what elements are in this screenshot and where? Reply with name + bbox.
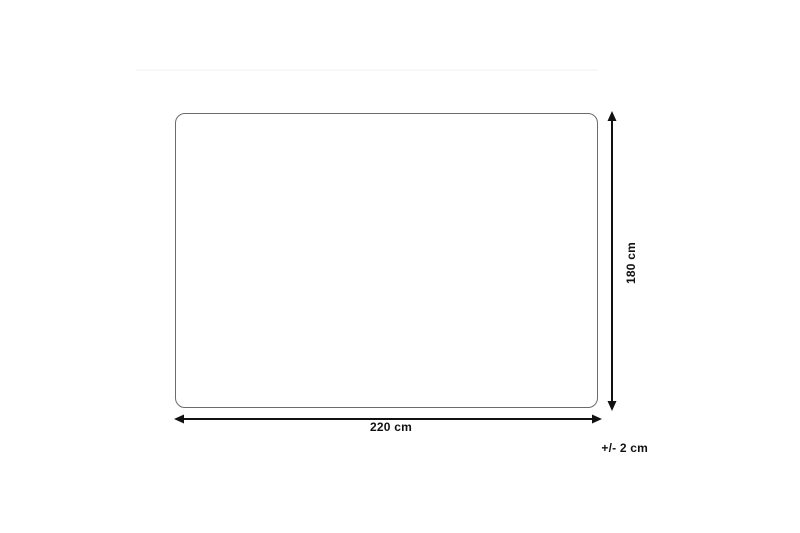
dimension-diagram: 180 cm 220 cm +/- 2 cm	[0, 0, 800, 533]
faint-divider-line	[136, 69, 598, 71]
height-dimension-arrow-icon	[605, 111, 619, 411]
product-outline-rectangle	[175, 113, 598, 408]
height-dimension-label: 180 cm	[624, 242, 638, 284]
width-dimension-label: 220 cm	[370, 420, 412, 434]
tolerance-label: +/- 2 cm	[601, 441, 648, 455]
